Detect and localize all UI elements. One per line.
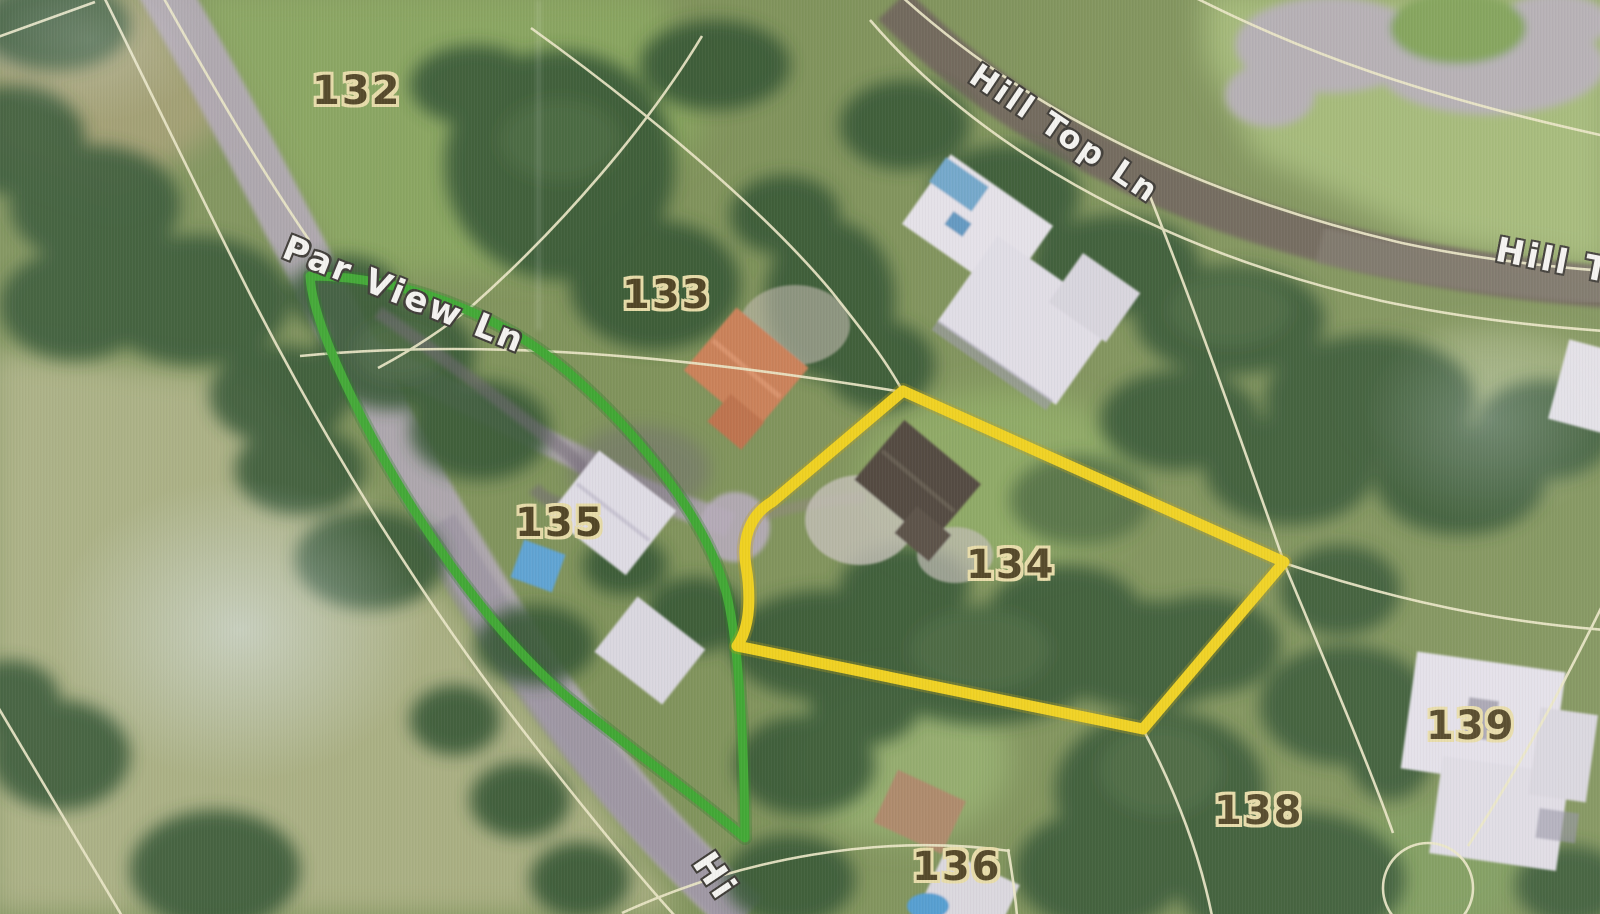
parcel-label-139: 139	[1426, 703, 1516, 749]
parcel-label-132: 132	[312, 68, 402, 114]
parcel-label-135: 135	[515, 500, 605, 546]
parcel-label-133: 133	[622, 272, 712, 318]
parcel-label-138: 138	[1214, 788, 1304, 834]
parcel-label-136: 136	[912, 844, 1002, 890]
pool-135	[510, 540, 565, 593]
map-imagery	[0, 0, 1600, 914]
parcel-label-134: 134	[966, 542, 1056, 588]
aerial-map-canvas[interactable]: 132 133 135 134 136 138 139 Par View Ln …	[0, 0, 1600, 914]
